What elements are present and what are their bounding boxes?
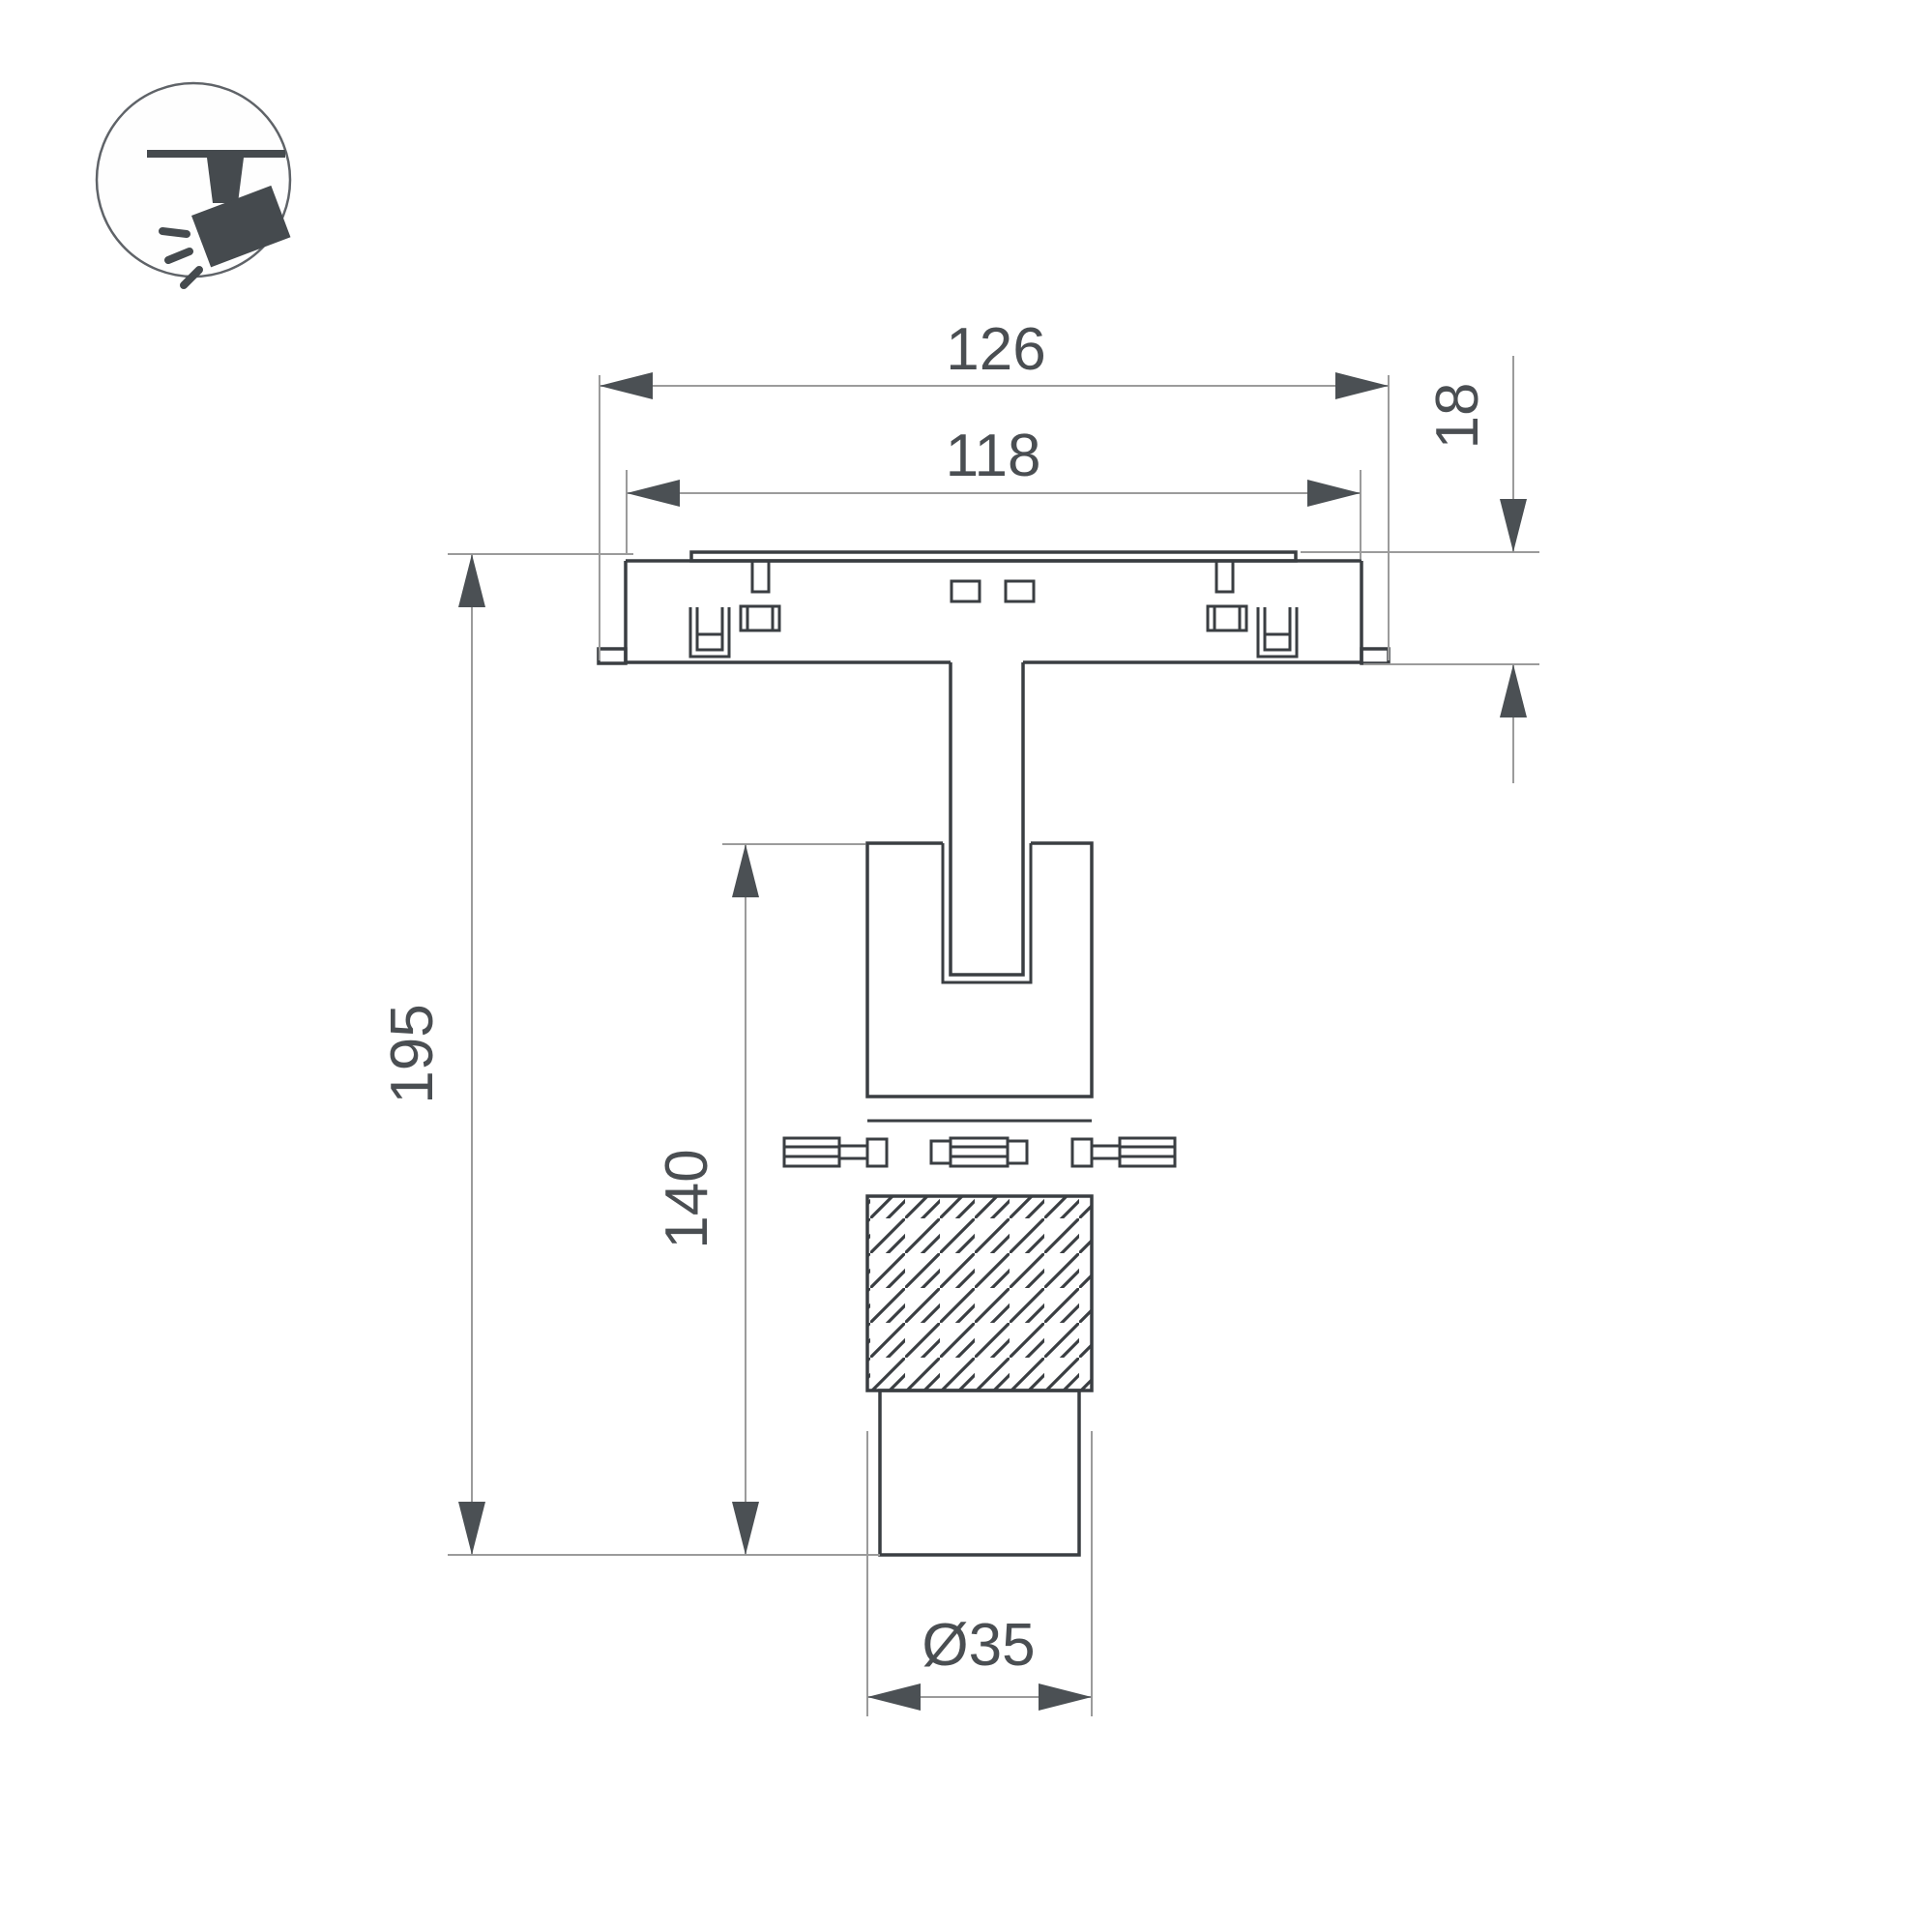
extension-lines — [1301, 552, 1539, 664]
base-clip-left — [690, 607, 729, 657]
track-base — [599, 552, 1389, 663]
arrow-down-icon — [458, 1502, 485, 1555]
radiator-fins — [784, 1138, 1175, 1166]
head-housing — [867, 843, 1092, 1097]
fin-bracket-left — [867, 1139, 887, 1166]
lamp-head — [867, 843, 1092, 1196]
dimension-mount-width: 118 — [627, 423, 1361, 559]
mounting-stem — [951, 662, 1023, 975]
arrow-right-icon — [1335, 372, 1389, 399]
arrow-left-icon — [867, 1683, 921, 1711]
fin-plate-right — [1120, 1138, 1175, 1166]
lamp-cylinder — [880, 1390, 1079, 1555]
head-stem-slot — [943, 843, 1031, 982]
base-body — [626, 561, 1361, 662]
dimension-track-depth: 18 — [1301, 356, 1539, 783]
fin-plate-left — [784, 1138, 839, 1166]
base-slot-left — [752, 561, 769, 592]
screw-block-left — [931, 1141, 951, 1163]
screw-block-right — [1008, 1141, 1027, 1163]
fin-arm-right — [1092, 1146, 1120, 1158]
icon-track-bar — [147, 150, 285, 158]
dimension-label-track-depth: 18 — [1424, 383, 1491, 450]
base-center-contact-1 — [951, 581, 980, 601]
screw-body — [951, 1138, 1008, 1166]
extension-lines — [448, 554, 880, 1555]
ceiling-track-spotlight-icon — [97, 83, 290, 285]
dimension-diameter: Ø35 — [867, 1431, 1092, 1716]
arrow-left-icon — [600, 372, 653, 399]
dimension-label-overall-width: 126 — [946, 316, 1045, 383]
base-contact-right — [1208, 606, 1246, 630]
arrow-down-icon — [732, 1502, 759, 1555]
base-slot-right — [1216, 561, 1233, 592]
base-tab-left — [599, 649, 626, 663]
arrow-right-icon — [1307, 480, 1361, 507]
dimension-overall-height: 195 — [379, 554, 880, 1555]
dimension-label-overall-height: 195 — [379, 1004, 446, 1103]
fin-arm-left — [839, 1146, 867, 1158]
base-clip-right — [1258, 607, 1297, 657]
base-contact-left — [741, 606, 779, 630]
technical-drawing: 126 118 18 195 140 Ø35 — [0, 0, 1932, 1932]
dimension-label-body-height: 140 — [654, 1149, 720, 1248]
dimension-label-diameter: Ø35 — [922, 1612, 1035, 1679]
arrow-up-icon — [458, 554, 485, 607]
arrow-right-icon — [1039, 1683, 1092, 1711]
arrow-up-icon — [1500, 664, 1527, 717]
arrow-left-icon — [627, 480, 680, 507]
arrow-up-icon — [732, 844, 759, 897]
dimension-body-height: 140 — [654, 844, 865, 1555]
fixture-drawing — [599, 552, 1389, 1555]
dimension-drawing-page: 126 118 18 195 140 Ø35 — [0, 0, 1932, 1932]
arrow-down-icon — [1500, 499, 1527, 552]
knurled-ring — [867, 1196, 1092, 1390]
extension-lines — [600, 375, 1389, 660]
base-tab-right — [1361, 649, 1389, 663]
dimension-label-mount-width: 118 — [946, 423, 1041, 489]
base-center-contact-2 — [1006, 581, 1034, 601]
icon-stem — [207, 158, 244, 203]
fin-bracket-right — [1072, 1139, 1092, 1166]
